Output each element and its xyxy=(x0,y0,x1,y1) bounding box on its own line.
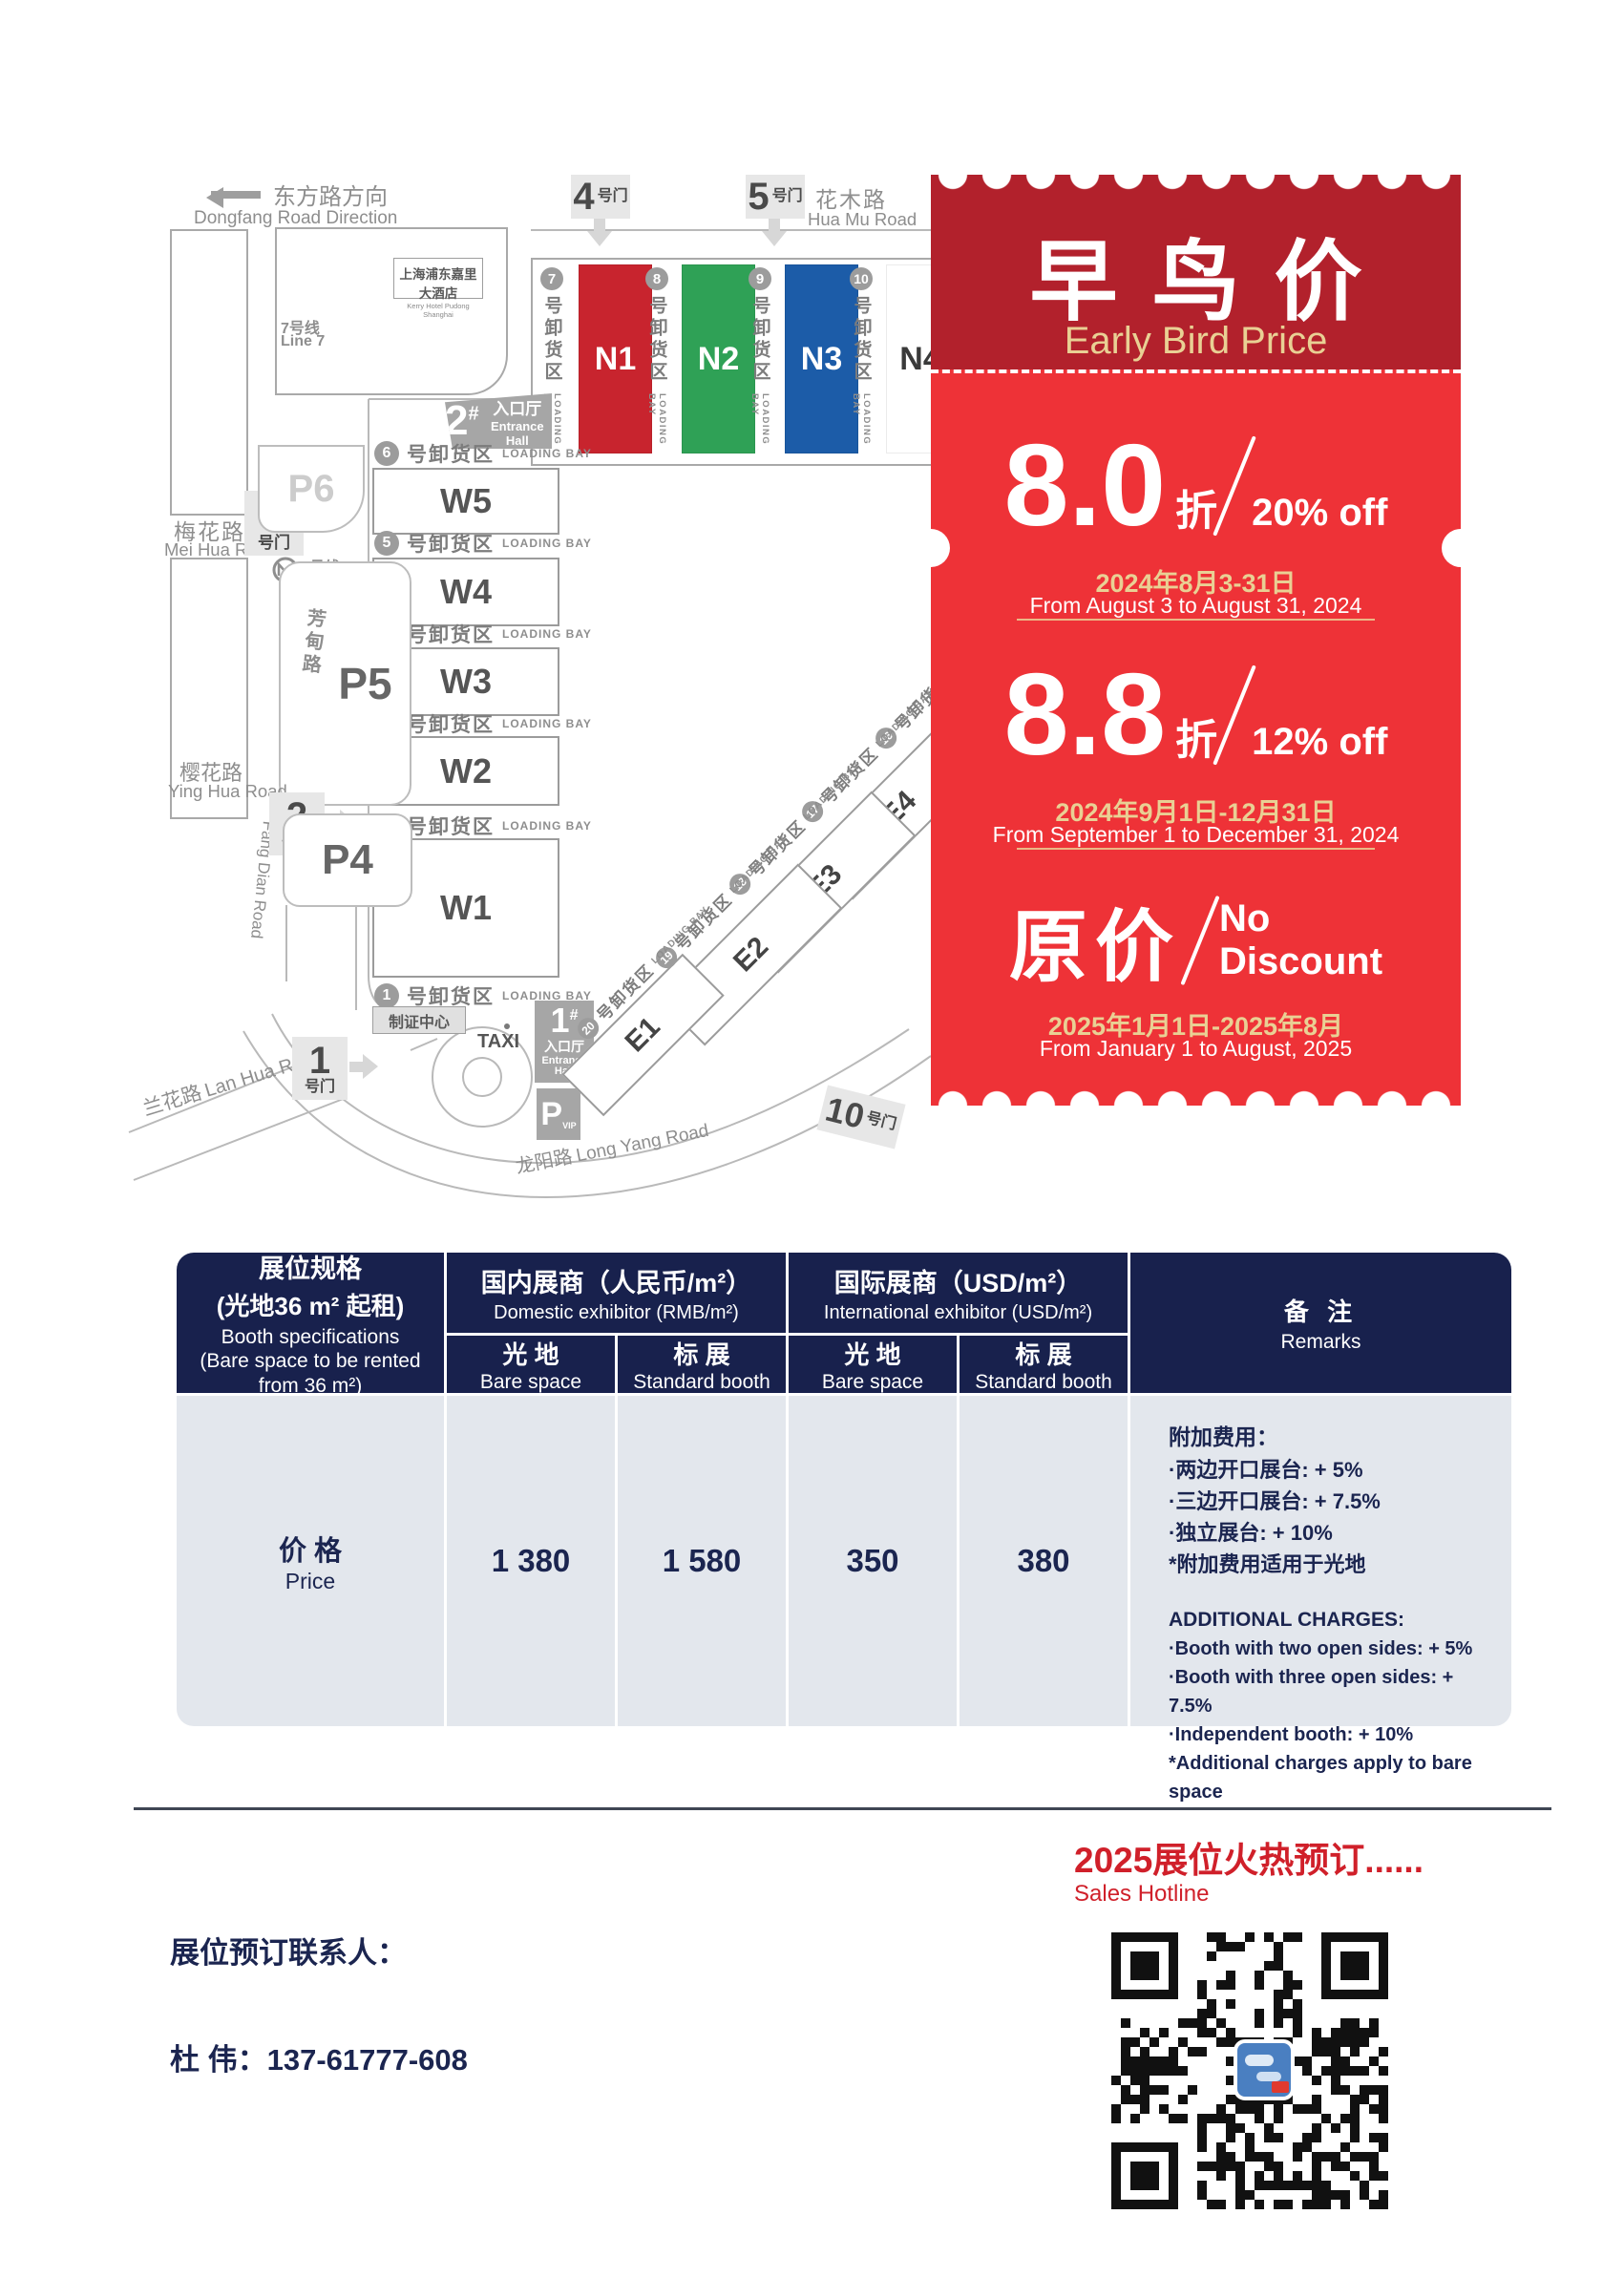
price-table: 展位规格 (光地36 m² 起租) Booth specifications (… xyxy=(177,1253,1511,1726)
price-domestic-bare: 1 380 xyxy=(447,1396,615,1726)
tier1-date-en: From August 3 to August 31, 2024 xyxy=(931,593,1461,619)
loading-bay-5: 5 号卸货区 LOADING BAY xyxy=(374,529,592,558)
price-domestic-standard: 1 580 xyxy=(618,1396,786,1726)
table-subheader-bare-domestic: 光 地 Bare space xyxy=(447,1336,615,1393)
early-bird-panel: 早鸟价 Early Bird Price 8.0 折 20% off 2024年… xyxy=(931,175,1461,1106)
table-row-price-label: 价 格 Price xyxy=(177,1396,444,1726)
ticket-scallop-top xyxy=(931,175,1461,192)
hotel-label-box: 上海浦东嘉里大酒店 Kerry Hotel Pudong Shanghai xyxy=(393,258,483,299)
ticket-scallop-bottom xyxy=(931,1088,1461,1106)
cloud-icon xyxy=(1245,2055,1274,2066)
table-header-remarks: 备 注 Remarks xyxy=(1130,1253,1511,1393)
tier3-off-line1: No xyxy=(1219,897,1382,940)
booking-contact-label: 展位预订联系人： xyxy=(170,1929,407,1972)
tier1-rate: 8.0 xyxy=(1004,431,1167,541)
cloud-icon xyxy=(1256,2072,1281,2081)
table-header-spec: 展位规格 (光地36 m² 起租) Booth specifications (… xyxy=(177,1253,444,1393)
qr-code xyxy=(1096,1927,1432,2225)
tier2-zhe: 折 xyxy=(1175,706,1217,767)
footer-divider xyxy=(134,1807,1551,1810)
slash-divider xyxy=(1213,664,1256,765)
table-remarks-body: 附加费用： ·两边开口展台: + 5% ·三边开口展台: + 7.5% ·独立展… xyxy=(1130,1396,1511,1726)
loading-bay-9: 9 号卸货区 LOADING BAY xyxy=(749,267,771,468)
hall-n2: N2 xyxy=(682,264,755,453)
tier2-rate-row: 8.8 折 12% off xyxy=(931,660,1461,770)
tier1-zhe: 折 xyxy=(1175,476,1217,538)
tier1-rate-row: 8.0 折 20% off xyxy=(931,431,1461,541)
parking-p6: P6 xyxy=(258,445,365,533)
flag-icon xyxy=(1272,2081,1289,2093)
vip-parking: P VIP xyxy=(537,1088,580,1140)
flyer-page: 东方路方向 Dongfang Road Direction 上海浦东嘉里大酒店 … xyxy=(0,0,1624,2278)
dongfang-road-label-zh: 东方路方向 xyxy=(273,178,388,211)
gate-5-arrow-icon xyxy=(762,219,787,259)
badge-center-box: 制证中心 xyxy=(372,1006,466,1034)
huamu-road-label-en: Hua Mu Road xyxy=(808,209,917,230)
loading-bay-8: 8 号卸货区 LOADING BAY xyxy=(645,267,668,468)
tier2-rate: 8.8 xyxy=(1004,660,1167,770)
tier2-off: 12% off xyxy=(1252,721,1387,764)
hall-w5: W5 xyxy=(372,468,559,535)
parking-p4: P4 xyxy=(283,813,412,907)
early-bird-title-en: Early Bird Price xyxy=(931,320,1461,363)
gate-1: 1 号门 xyxy=(292,1037,348,1100)
slash-divider xyxy=(1213,435,1256,536)
taxi-dot-icon xyxy=(504,1023,510,1029)
gate-4-arrow-icon xyxy=(587,219,612,259)
loading-bay-6: 6 号卸货区 LOADING BAY xyxy=(374,439,592,468)
hall-n3: N3 xyxy=(785,264,858,453)
taxi-label: TAXI xyxy=(477,1031,519,1053)
contact-person-phone: 杜 伟：137-61777-608 xyxy=(170,2035,468,2078)
sales-hotline-title-en: Sales Hotline xyxy=(1074,1881,1209,1908)
table-subheader-std-intl: 标 展 Standard booth xyxy=(960,1336,1128,1393)
hotel-name-en: Kerry Hotel Pudong Shanghai xyxy=(394,302,482,319)
price-intl-bare: 350 xyxy=(789,1396,957,1726)
sales-hotline-title-zh: 2025展位火热预订...... xyxy=(1074,1831,1424,1883)
table-subheader-bare-intl: 光 地 Bare space xyxy=(789,1336,957,1393)
tier1-off: 20% off xyxy=(1252,492,1387,535)
gate-5: 5 号门 xyxy=(746,175,805,219)
gate-4: 4 号门 xyxy=(571,175,630,219)
qr-center-logo xyxy=(1234,2039,1295,2100)
tier2-date-en: From September 1 to December 31, 2024 xyxy=(931,822,1461,848)
tier-divider xyxy=(1017,848,1375,850)
slash-divider xyxy=(1180,895,1219,984)
tier3-date-en: From January 1 to August, 2025 xyxy=(931,1036,1461,1062)
tier3-rate-row: 原价 No Discount xyxy=(931,883,1461,997)
tier3-label: 原价 xyxy=(1009,883,1181,997)
hall-n1: N1 xyxy=(579,264,652,453)
gate-1-arrow-icon xyxy=(349,1054,390,1079)
metro-line7-label-en: Line 7 xyxy=(281,333,325,350)
tier3-off-line2: Discount xyxy=(1219,940,1382,983)
dongfang-road-label-en: Dongfang Road Direction xyxy=(194,208,397,229)
tier-divider xyxy=(1017,619,1375,621)
table-subheader-std-domestic: 标 展 Standard booth xyxy=(618,1336,786,1393)
hotel-name-zh: 上海浦东嘉里大酒店 xyxy=(394,264,482,302)
dongfang-direction-arrow xyxy=(196,187,263,200)
city-block xyxy=(170,229,248,516)
loading-bay-10: 10 号卸货区 LOADING BAY xyxy=(850,267,873,468)
table-header-international: 国际展商（USD/m²） International exhibitor (US… xyxy=(789,1253,1128,1333)
table-header-domestic: 国内展商（人民币/m²） Domestic exhibitor (RMB/m²) xyxy=(447,1253,786,1333)
price-intl-standard: 380 xyxy=(960,1396,1128,1726)
